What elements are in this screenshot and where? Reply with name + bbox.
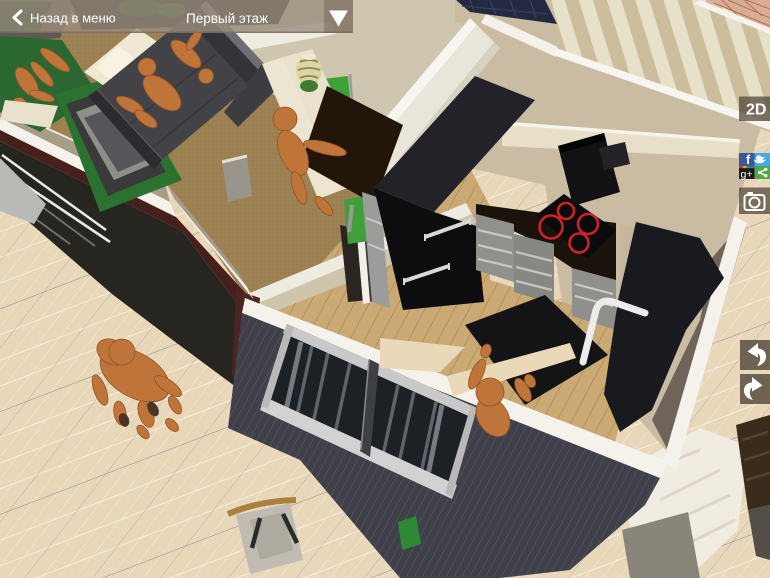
svg-text:Первый этаж: Первый этаж — [186, 11, 268, 26]
svg-text:g+: g+ — [741, 169, 753, 181]
svg-text:Назад в меню: Назад в меню — [30, 11, 116, 26]
svg-text:2D: 2D — [746, 102, 766, 119]
